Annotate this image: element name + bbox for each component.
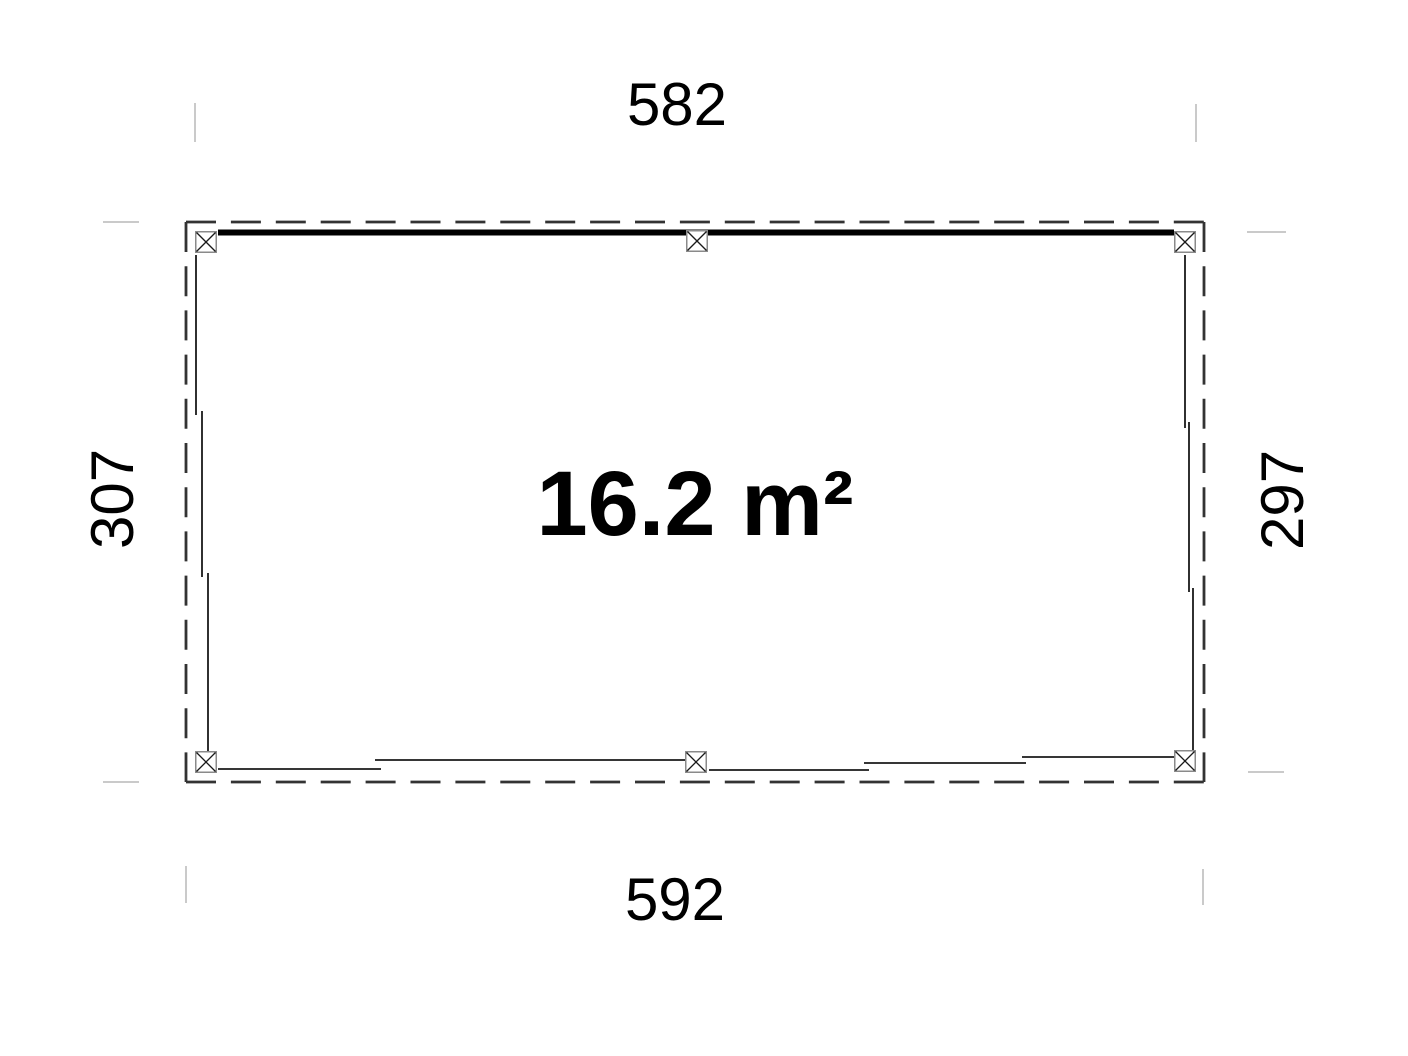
- post-marker-bottom-right: [1175, 751, 1196, 772]
- post-marker-bottom-middle: [686, 752, 707, 773]
- floor-plan-page: 582 592 307 297 16.2 m²: [0, 0, 1408, 1056]
- area-label: 16.2 m²: [536, 453, 853, 555]
- dimension-bottom-label: 592: [625, 866, 725, 933]
- post-marker-top-left: [196, 232, 217, 253]
- labels: 582 592 307 297 16.2 m²: [79, 71, 1316, 933]
- post-marker-bottom-left: [196, 752, 217, 773]
- post-marker-top-middle: [687, 231, 708, 252]
- dimension-left-label: 307: [79, 449, 146, 549]
- dimension-right-label: 297: [1249, 450, 1316, 550]
- floor-plan-drawing: 582 592 307 297 16.2 m²: [0, 0, 1408, 1056]
- post-marker-top-right: [1175, 232, 1196, 253]
- dimension-top-label: 582: [627, 71, 727, 138]
